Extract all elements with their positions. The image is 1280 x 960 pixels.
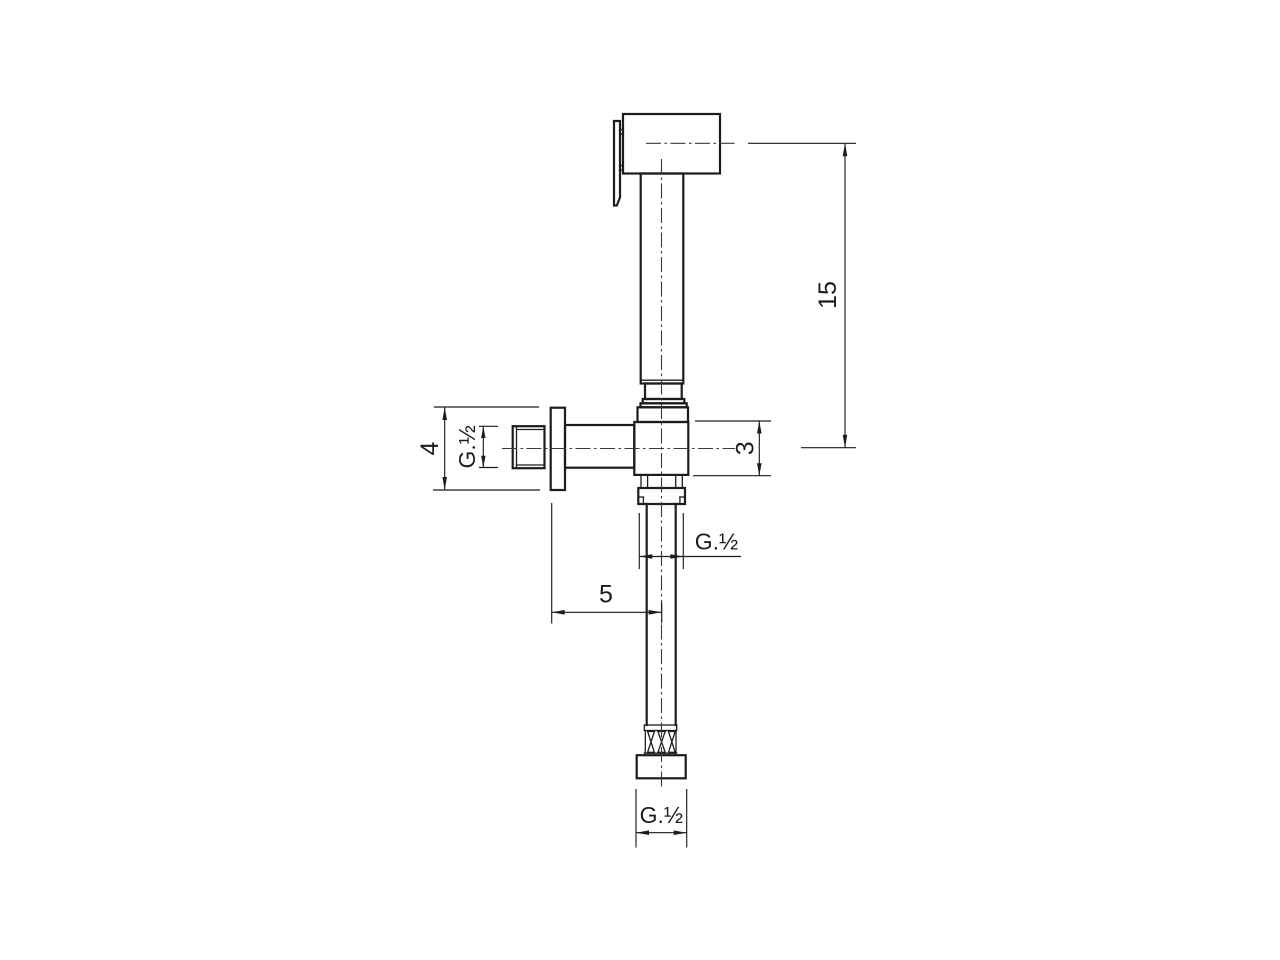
drawing-canvas: 15 4 G.½ 3 G.½ — [0, 0, 1280, 960]
product-outline — [513, 114, 720, 778]
nut-lug-left — [641, 475, 648, 488]
dim-15-label: 15 — [814, 281, 842, 309]
thread-profile-left — [648, 732, 655, 753]
arrow-down — [481, 456, 485, 468]
neck-sleeve — [645, 384, 682, 400]
dim-bottom-thread: G.½ — [636, 789, 687, 848]
thread-profile-right — [669, 732, 676, 753]
arrow-up — [843, 143, 848, 156]
wall-pipe — [565, 425, 634, 468]
dim-bottom-thread-label: G.½ — [640, 802, 683, 828]
arrow-up — [481, 426, 485, 438]
sprayer-handle — [641, 174, 684, 384]
dim-4-label: 4 — [416, 441, 444, 455]
connector-ring — [644, 725, 676, 731]
arrow-down — [757, 463, 762, 476]
dim-5-label: 5 — [599, 581, 613, 609]
inlet-nipple-body — [513, 426, 545, 468]
dim-outlet-thread: G.½ — [639, 513, 741, 569]
dim-inlet-thread: G.½ — [454, 425, 498, 468]
arrow-down — [843, 435, 848, 448]
arrow-down — [442, 477, 447, 490]
neck-collar — [638, 407, 689, 422]
arrow-right — [674, 830, 687, 835]
dim-overall-height: 15 — [748, 143, 856, 447]
dim-3-label: 3 — [732, 441, 760, 455]
arrow-up — [757, 421, 762, 434]
hose-connector — [644, 725, 676, 753]
inlet-nipple — [513, 426, 545, 468]
technical-drawing: 15 4 G.½ 3 G.½ — [0, 0, 1280, 960]
handle-neck — [638, 384, 689, 423]
dim-inlet-thread-label: G.½ — [454, 425, 480, 468]
arrow-right — [649, 610, 662, 615]
dim-wall-offset: 5 — [552, 503, 662, 624]
arrow-left — [636, 830, 649, 835]
dim-outlet-thread-label: G.½ — [695, 529, 738, 555]
nut-lug-right — [676, 475, 683, 488]
arrow-left — [552, 610, 565, 615]
arrow-up — [442, 407, 447, 420]
